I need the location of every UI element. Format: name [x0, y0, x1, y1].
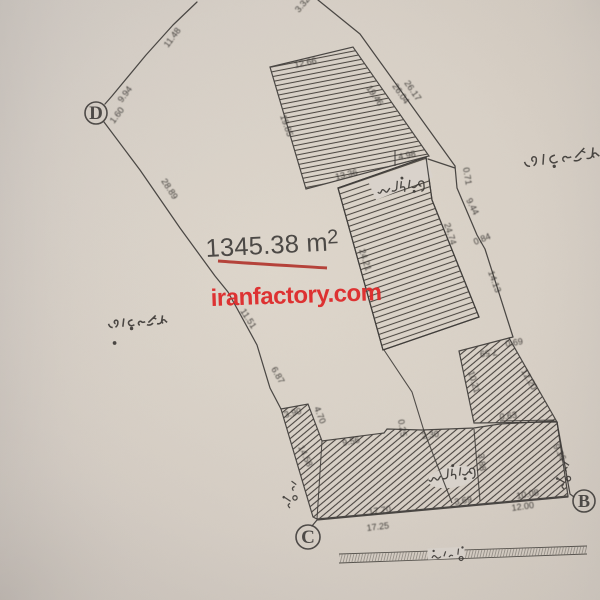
svg-text:B: B	[578, 491, 590, 511]
svg-text:3.88: 3.88	[476, 453, 488, 472]
svg-text:2: 2	[327, 226, 339, 249]
svg-text:D: D	[89, 103, 103, 124]
svg-text:C: C	[301, 527, 315, 548]
svg-text:7.59: 7.59	[479, 347, 498, 359]
